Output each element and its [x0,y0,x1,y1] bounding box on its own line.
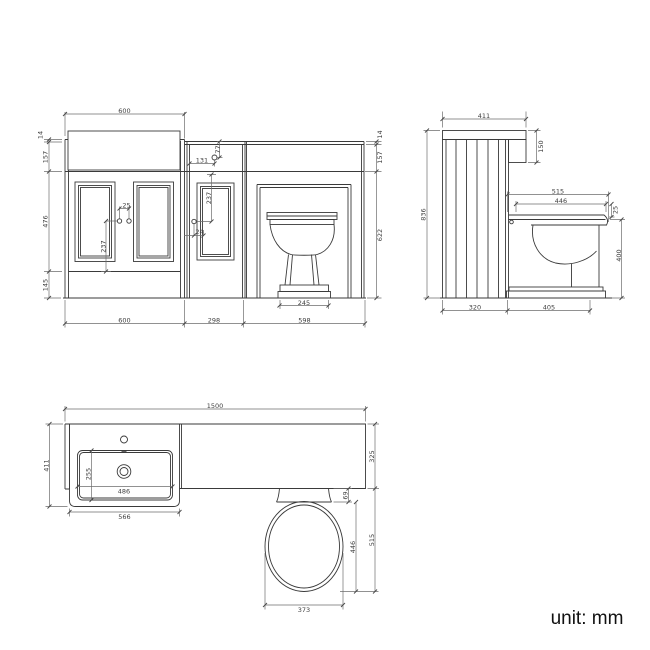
plan-view: 1500 411 325 255 486 566 69 446 515 373 [43,402,380,614]
dim-front-plinth: 145 [42,279,50,291]
toilet-side [507,215,608,298]
dim-side-seat-height: 400 [615,249,623,261]
flush-button [212,155,217,160]
dim-plan-basin-bowl-width: 486 [118,488,130,496]
dim-side-end-drop: 150 [537,140,545,152]
dim-front-door-height: 476 [42,215,50,227]
dim-vanity-knob-height: 237 [100,240,108,252]
drain-inner [120,468,128,476]
vanity-door-left [75,182,115,262]
dim-front-upstand-right: 157 [376,151,384,163]
dim-side-total-height: 836 [420,208,428,220]
vanity-knob-left [117,219,121,223]
toilet-pedestal-front [285,255,319,286]
toilet-plan [265,489,343,592]
toilet-front [267,213,337,299]
dim-plan-basin-bowl-depth: 255 [85,468,93,480]
seat-hinge [510,220,514,224]
front-elevation-view: 600 14 157 476 145 131 77 25 237 237 24 … [37,107,385,328]
dim-plan-total-width: 1500 [207,402,224,410]
dim-knob-spacing: 25 [122,202,130,210]
dim-flush-from-top: 77 [214,145,222,153]
seat-outer [265,502,343,592]
plan-counter-outline [65,424,366,489]
dim-front-width-toilet: 598 [298,317,310,325]
side-elevation-view: 411 150 836 515 446 25 400 320 405 [420,112,626,315]
side-worktop [443,131,527,140]
vanity-door-right-panel [137,186,170,259]
toilet-bowl-side [532,225,599,287]
dim-pan-base-width: 245 [298,299,310,307]
dim-wc-knob-from-top: 237 [205,192,213,204]
dim-front-lip-right: 14 [376,130,384,138]
dim-front-width-vanity: 600 [118,317,130,325]
dim-plan-basin-width: 566 [118,513,130,521]
dim-side-pan-depth: 405 [543,304,555,312]
vanity-door-right [134,182,174,262]
unit-label: unit: mm [551,608,624,629]
drain-outer [117,465,131,479]
dim-plan-seat-length: 446 [349,541,357,553]
wc-door-knob [192,219,196,223]
dim-side-unit-depth: 320 [469,304,481,312]
plan-dimension-lines [46,406,380,610]
side-dimension-lines [424,112,626,315]
toilet-bowl-front [270,225,334,256]
side-end-panel [509,140,527,163]
basin-front-panel [68,131,180,170]
dim-side-seat-thickness: 25 [612,206,620,214]
dim-front-body-height: 622 [376,229,384,241]
dim-plan-vanity-depth: 411 [43,459,51,471]
dim-wc-knob-offset: 24 [195,228,203,236]
dim-plan-pan-projection: 515 [368,534,376,546]
dim-front-upstand-left: 157 [42,151,50,163]
dim-plan-seat-gap: 69 [342,491,350,499]
vanity-knob-right [127,219,131,223]
dim-front-width-top: 600 [118,107,130,115]
seat-inner [269,505,340,588]
vanity-door-right-panel-inner [139,188,168,257]
bathroom-unit-drawing: 600 14 157 476 145 131 77 25 237 237 24 … [0,0,650,650]
dim-flush-from-left: 131 [196,157,208,165]
dim-plan-counter-depth: 325 [368,450,376,462]
dim-side-pan-projection: 515 [552,188,564,196]
side-panel-slats [446,140,506,299]
dim-plan-pan-width: 373 [298,606,310,614]
dim-side-depth-top: 411 [478,112,490,120]
dim-side-seat-length: 446 [555,197,567,205]
faucet-hole [121,436,128,443]
dim-front-lip-left: 14 [37,131,45,139]
technical-drawing-page: 600 14 157 476 145 131 77 25 237 237 24 … [0,0,650,650]
dim-front-width-wc: 298 [208,317,220,325]
